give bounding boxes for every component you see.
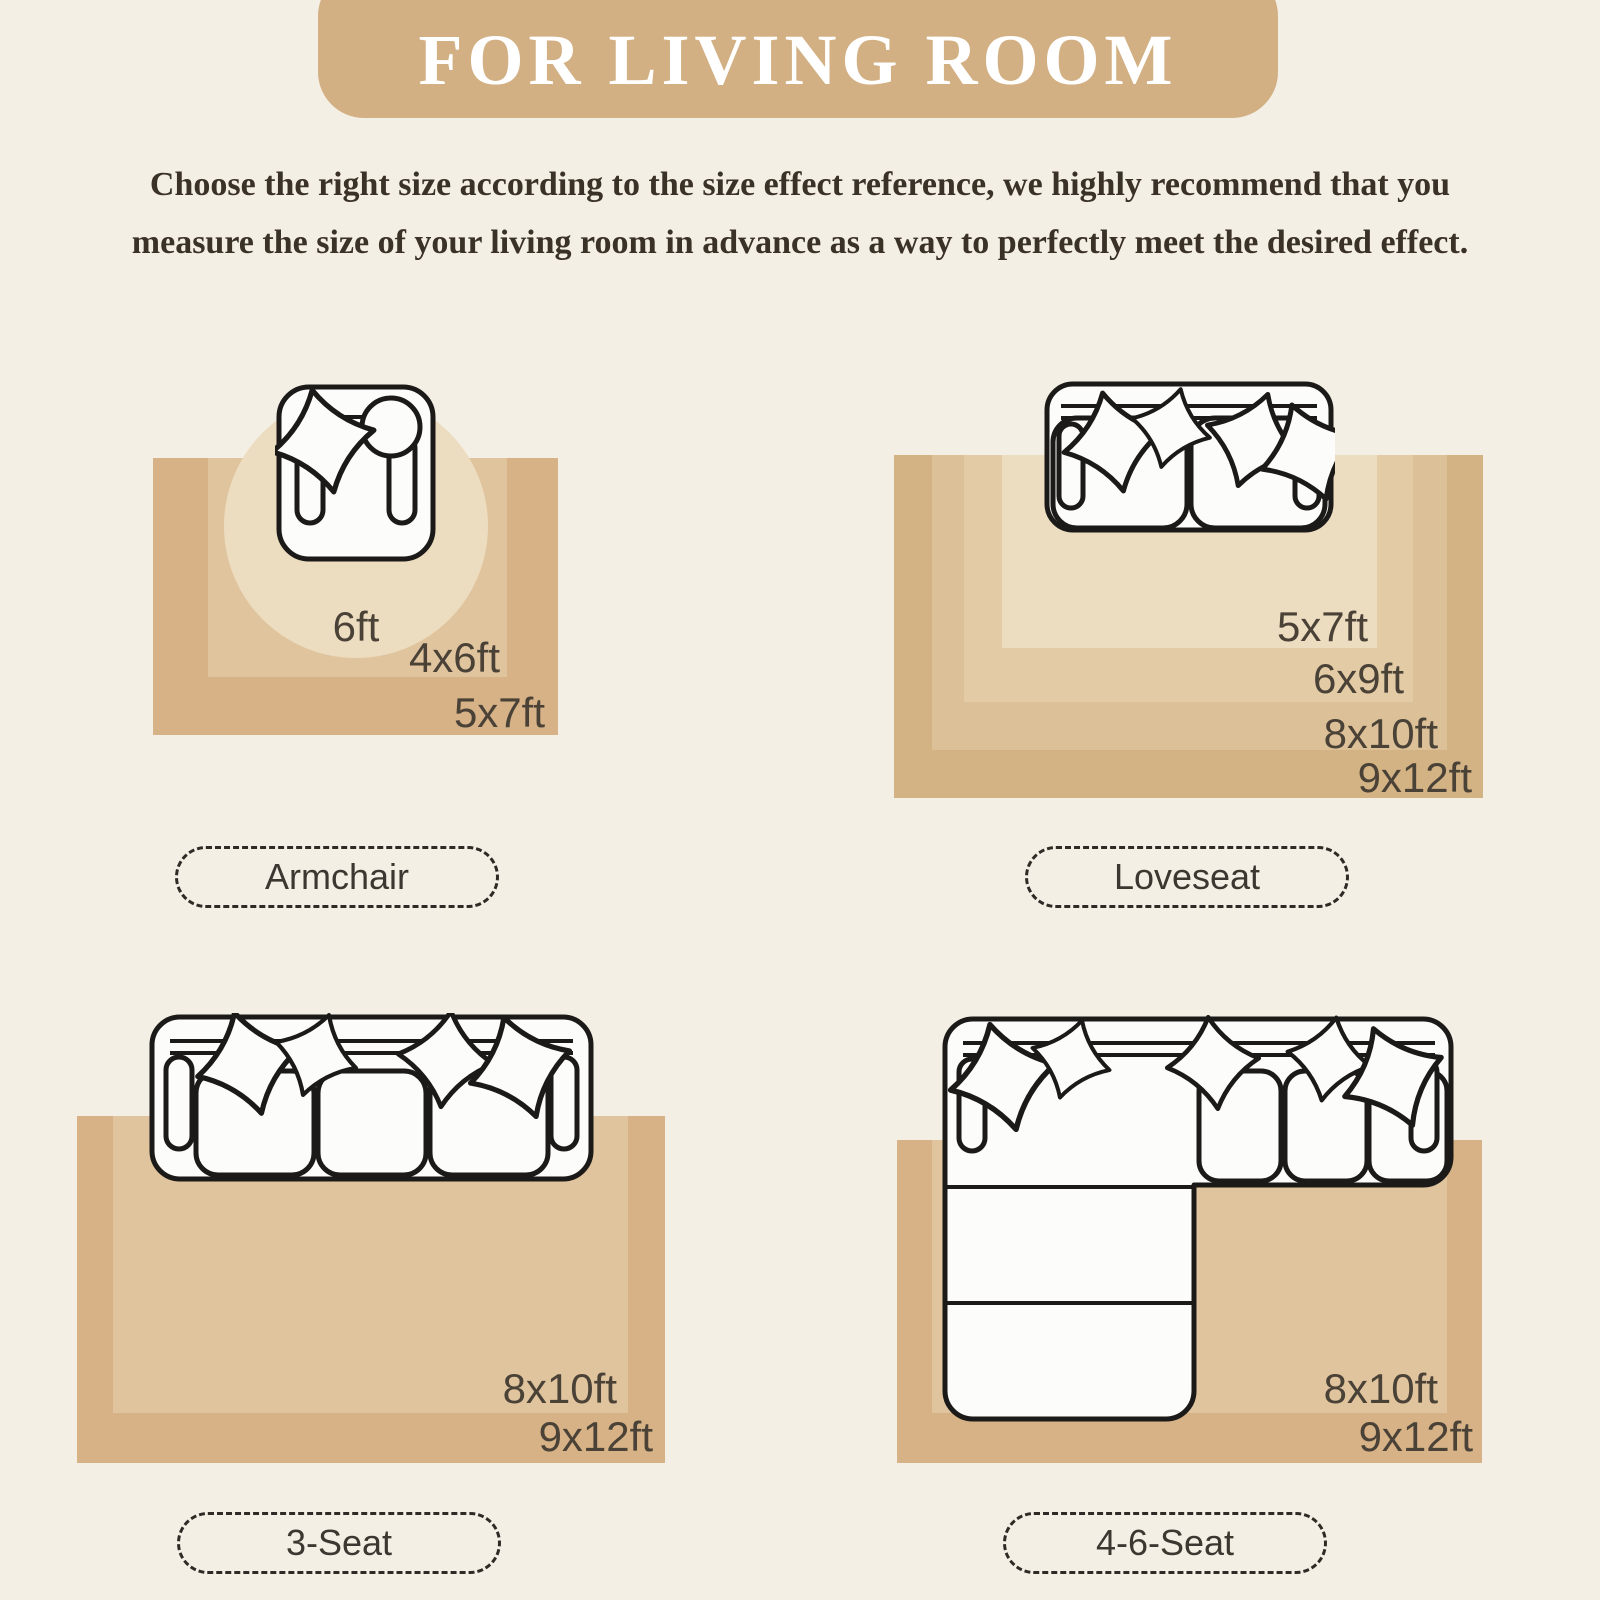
intro-text: Choose the right size according to the s…	[0, 156, 1600, 272]
armchair-size-5x7: 5x7ft	[454, 688, 545, 738]
threeseat-pill-label: 3-Seat	[177, 1512, 501, 1574]
sofa-armrest-left	[166, 1057, 192, 1149]
armchair-label: Armchair	[265, 856, 409, 898]
loveseat-label: Loveseat	[1114, 856, 1260, 898]
armchair-size-4x6: 4x6ft	[409, 633, 500, 683]
armchair-pill-label: Armchair	[175, 846, 499, 908]
loveseat-size-5x7: 5x7ft	[1277, 602, 1368, 652]
loveseat-size-6x9: 6x9ft	[1313, 654, 1404, 704]
sectional-label: 4-6-Seat	[1096, 1522, 1234, 1564]
sofa-seat-cushion	[318, 1071, 426, 1175]
intro-line-2: measure the size of your living room in …	[0, 214, 1600, 272]
three-seat-sofa-icon	[148, 1013, 595, 1183]
armchair-icon	[275, 383, 437, 563]
loveseat-pill-label: Loveseat	[1025, 846, 1349, 908]
sectional-pill-label: 4-6-Seat	[1003, 1512, 1327, 1574]
intro-line-1: Choose the right size according to the s…	[0, 156, 1600, 214]
threeseat-size-9x12: 9x12ft	[539, 1412, 653, 1462]
threeseat-size-8x10: 8x10ft	[503, 1364, 617, 1414]
page-title: FOR LIVING ROOM	[318, 22, 1278, 98]
sectional-size-8x10: 8x10ft	[1324, 1364, 1438, 1414]
loveseat-size-9x12: 9x12ft	[1358, 753, 1472, 803]
sectional-size-9x12: 9x12ft	[1359, 1412, 1473, 1462]
armchair-size-6ft: 6ft	[296, 602, 416, 652]
infographic-living-room: FOR LIVING ROOM Choose the right size ac…	[0, 0, 1600, 1600]
loveseat-size-8x10: 8x10ft	[1324, 709, 1438, 759]
loveseat-icon	[1043, 380, 1335, 534]
header-banner: FOR LIVING ROOM	[318, 0, 1278, 118]
threeseat-label: 3-Seat	[286, 1522, 392, 1564]
